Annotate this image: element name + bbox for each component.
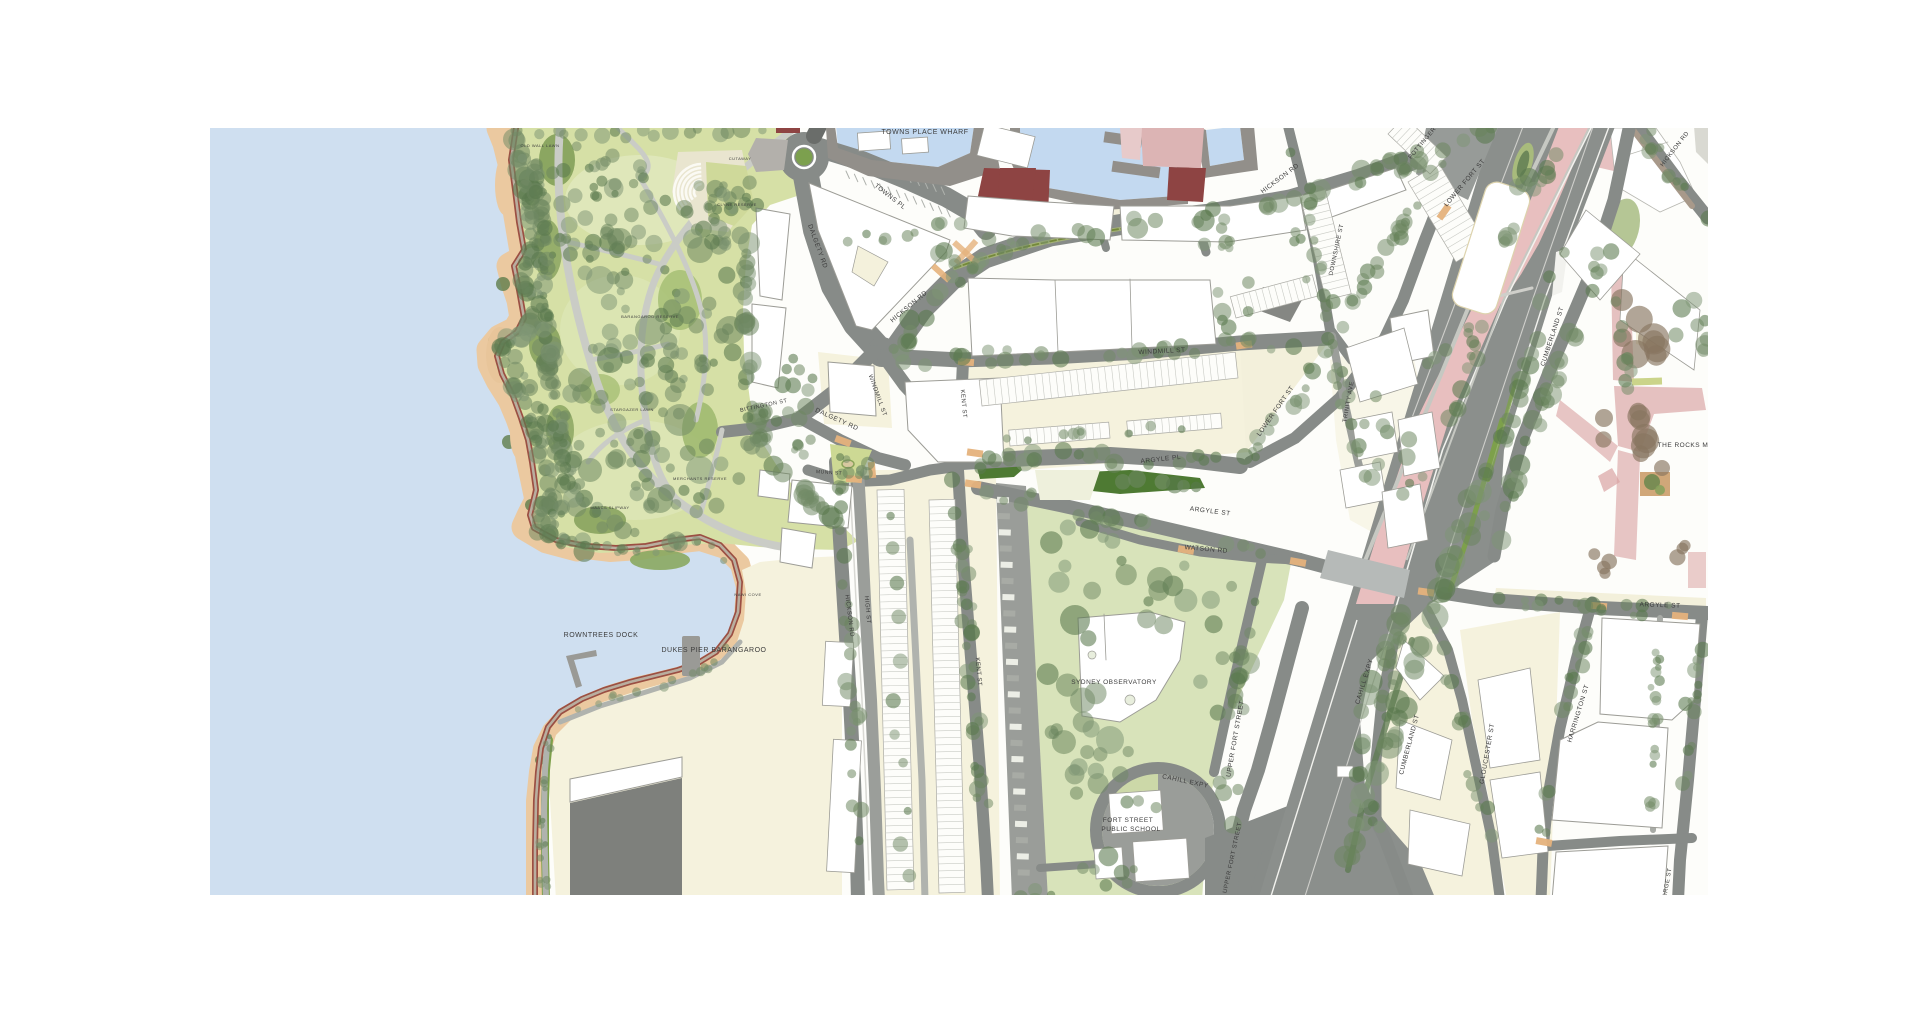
svg-text:MAACS SLIPWAY: MAACS SLIPWAY <box>590 505 629 510</box>
svg-text:PUBLIC SCHOOL: PUBLIC SCHOOL <box>1101 826 1160 833</box>
svg-text:NAWI COVE: NAWI COVE <box>734 592 761 597</box>
svg-text:MERCHANTS RESERVE: MERCHANTS RESERVE <box>673 476 727 481</box>
svg-text:DUKES PIER BARANGAROO: DUKES PIER BARANGAROO <box>661 647 766 654</box>
svg-text:STARGAZER LAWN: STARGAZER LAWN <box>610 407 654 412</box>
svg-text:FORT STREET: FORT STREET <box>1103 817 1153 824</box>
svg-text:OLD WALL LAWN: OLD WALL LAWN <box>521 143 560 148</box>
svg-text:BARANGAROO RESERVE: BARANGAROO RESERVE <box>621 314 679 319</box>
svg-text:TOWNS PLACE WHARF: TOWNS PLACE WHARF <box>882 129 969 136</box>
svg-text:CLYNE RESERVE: CLYNE RESERVE <box>717 202 757 207</box>
svg-text:ROWNTREES DOCK: ROWNTREES DOCK <box>564 632 639 639</box>
svg-text:ARGYLE ST: ARGYLE ST <box>1639 601 1680 609</box>
svg-text:SYDNEY OBSERVATORY: SYDNEY OBSERVATORY <box>1071 679 1157 686</box>
svg-text:CUTAWAY: CUTAWAY <box>729 156 752 161</box>
